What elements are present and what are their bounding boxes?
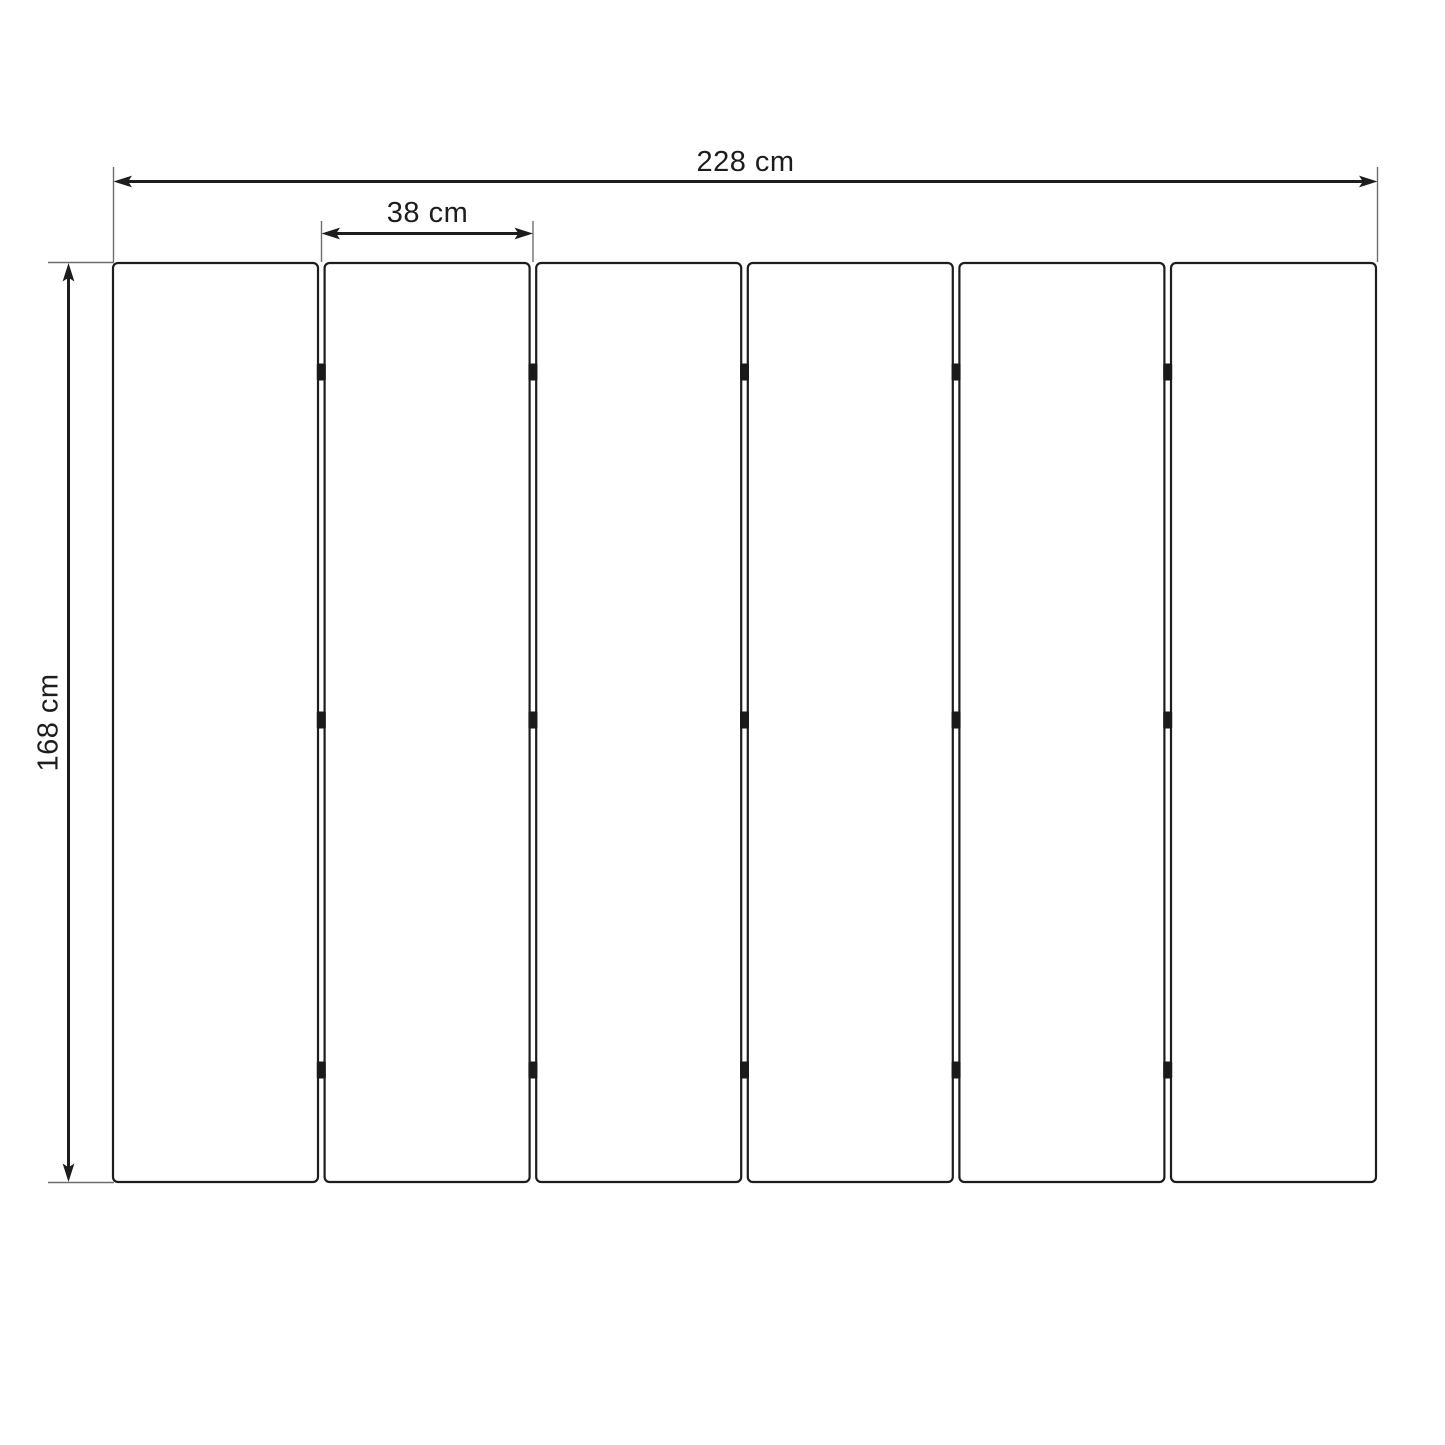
- panel-6: [1171, 263, 1376, 1182]
- hinge-mark: [528, 364, 537, 381]
- panel-3: [536, 263, 741, 1182]
- hinge-mark: [528, 712, 537, 729]
- hinge-mark: [740, 1062, 749, 1079]
- hinge-mark: [317, 364, 326, 381]
- folding-screen-dimension-diagram: 228 cm 38 cm 168 cm: [0, 0, 1445, 1445]
- total-width-dimension: 228 cm: [114, 146, 1378, 262]
- hinge-mark: [1163, 712, 1172, 729]
- hinge-mark: [317, 1062, 326, 1079]
- hinge-mark: [317, 712, 326, 729]
- panel-width-dimension: 38 cm: [322, 197, 534, 262]
- hinge-mark: [528, 1062, 537, 1079]
- height-dimension: 168 cm: [33, 263, 115, 1183]
- hinge-mark: [952, 1062, 961, 1079]
- diagram-canvas: 228 cm 38 cm 168 cm: [0, 0, 1445, 1445]
- hinge-mark: [952, 364, 961, 381]
- panel-width-label: 38 cm: [387, 197, 468, 229]
- hinge-mark: [1163, 1062, 1172, 1079]
- panel-2: [325, 263, 530, 1182]
- height-label: 168 cm: [33, 673, 65, 771]
- hinge-mark: [740, 712, 749, 729]
- hinge-mark: [1163, 364, 1172, 381]
- panel-1: [113, 263, 318, 1182]
- hinge-mark: [740, 364, 749, 381]
- total-width-label: 228 cm: [696, 146, 794, 178]
- panel-5: [959, 263, 1164, 1182]
- panel-4: [748, 263, 953, 1182]
- hinge-mark: [952, 712, 961, 729]
